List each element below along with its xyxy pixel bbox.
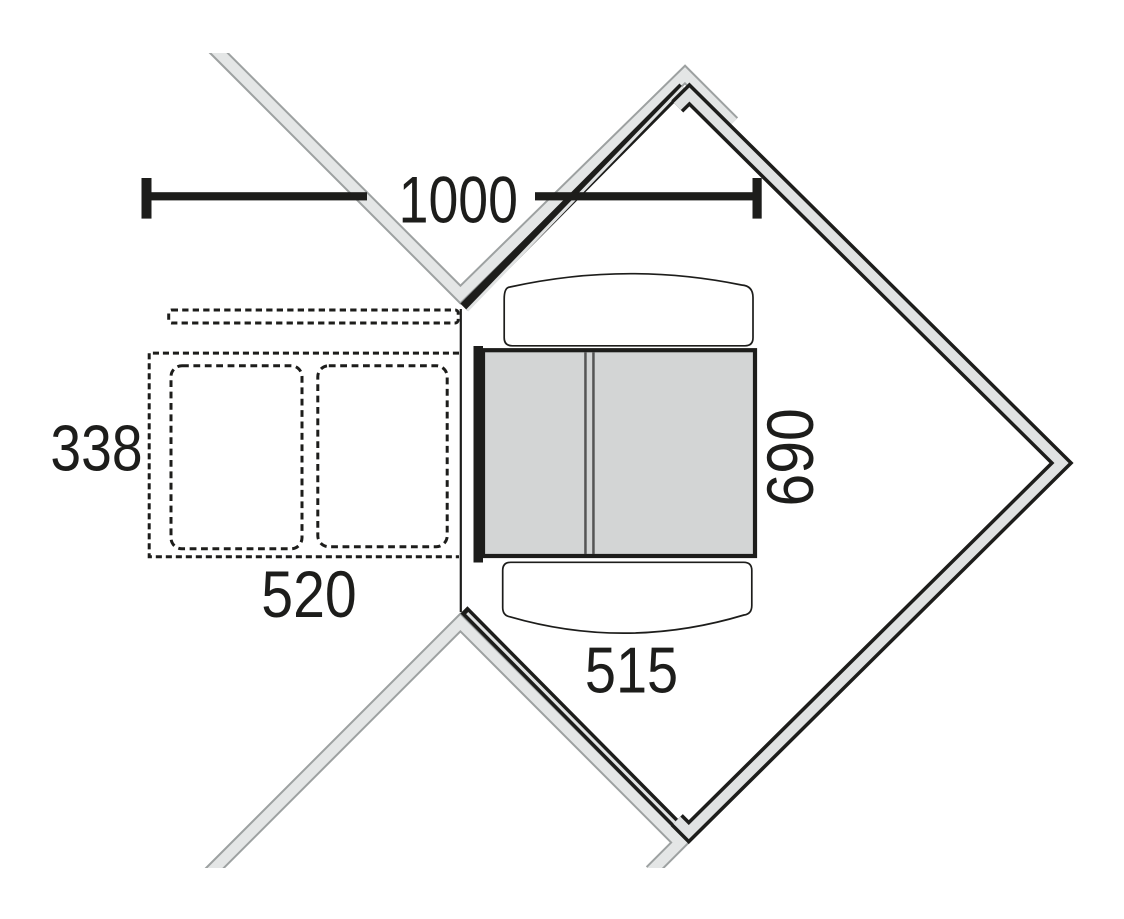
svg-text:338: 338 [50, 411, 142, 484]
svg-text:690: 690 [755, 408, 828, 506]
svg-text:1000: 1000 [399, 164, 518, 237]
svg-text:520: 520 [261, 558, 356, 631]
svg-text:515: 515 [585, 633, 678, 706]
